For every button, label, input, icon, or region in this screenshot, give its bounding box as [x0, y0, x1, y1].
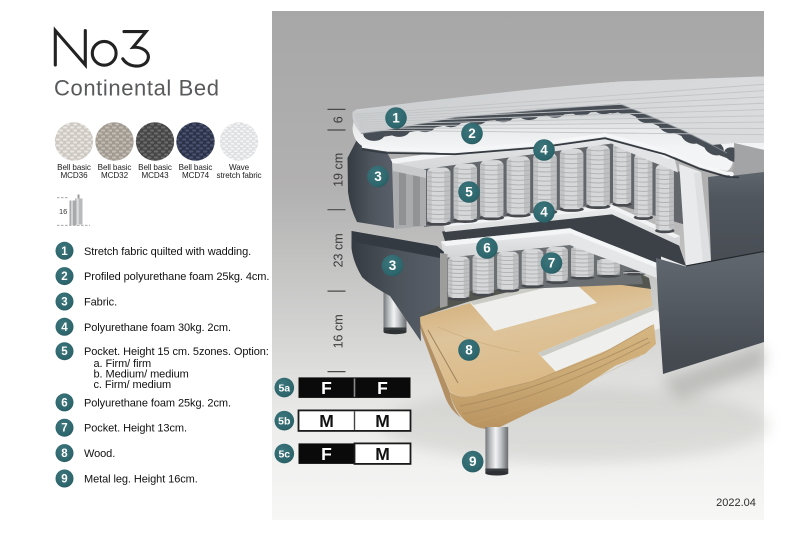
svg-text:3: 3	[61, 297, 67, 309]
svg-text:2: 2	[468, 126, 476, 141]
svg-text:3: 3	[389, 258, 397, 273]
svg-text:MCD36: MCD36	[61, 171, 89, 180]
svg-text:1: 1	[61, 246, 68, 258]
svg-text:1: 1	[392, 111, 400, 126]
svg-text:5: 5	[61, 346, 68, 358]
svg-text:2022.04: 2022.04	[716, 497, 756, 509]
svg-text:Polyurethane foam 30kg. 2cm.: Polyurethane foam 30kg. 2cm.	[84, 322, 231, 334]
svg-text:Continental Bed: Continental Bed	[54, 76, 220, 101]
svg-text:F: F	[321, 444, 332, 464]
svg-text:F: F	[377, 378, 388, 398]
svg-text:6: 6	[61, 397, 67, 409]
svg-text:Fabric.: Fabric.	[84, 297, 117, 309]
svg-text:8: 8	[465, 343, 473, 358]
svg-text:M: M	[375, 444, 390, 464]
svg-text:stretch fabric: stretch fabric	[217, 171, 262, 180]
svg-text:Pocket. Height 15 cm. 5zones.: Pocket. Height 15 cm. 5zones. Option:	[84, 346, 269, 358]
svg-text:Wood.: Wood.	[84, 448, 115, 460]
svg-text:5c: 5c	[278, 448, 290, 460]
svg-text:9: 9	[61, 474, 67, 486]
svg-text:23 cm: 23 cm	[331, 233, 345, 267]
svg-text:16: 16	[59, 207, 67, 216]
svg-text:MCD74: MCD74	[182, 171, 210, 180]
svg-text:5b: 5b	[278, 416, 290, 428]
svg-text:9: 9	[469, 454, 477, 469]
svg-text:8: 8	[61, 448, 68, 460]
svg-text:Metal leg. Height 16cm.: Metal leg. Height 16cm.	[84, 474, 198, 486]
svg-text:4: 4	[540, 205, 548, 220]
svg-text:7: 7	[61, 423, 67, 435]
svg-text:5: 5	[465, 185, 473, 200]
svg-text:M: M	[319, 411, 334, 431]
svg-text:F: F	[321, 378, 332, 398]
svg-text:Pocket. Height 13cm.: Pocket. Height 13cm.	[84, 423, 187, 435]
svg-text:3: 3	[374, 169, 382, 184]
svg-text:Polyurethane foam 25kg. 2cm.: Polyurethane foam 25kg. 2cm.	[84, 397, 231, 409]
svg-text:16 cm: 16 cm	[331, 314, 345, 348]
svg-text:MCD32: MCD32	[101, 171, 129, 180]
svg-text:6: 6	[331, 116, 345, 123]
svg-text:Stretch fabric quilted with wa: Stretch fabric quilted with wadding.	[84, 246, 251, 258]
svg-text:7: 7	[548, 256, 556, 271]
svg-text:c. Firm/ medium: c. Firm/ medium	[94, 379, 172, 391]
svg-text:4: 4	[61, 322, 68, 334]
svg-text:MCD43: MCD43	[142, 171, 170, 180]
svg-text:4: 4	[540, 143, 548, 158]
svg-text:2: 2	[61, 271, 67, 283]
svg-text:5a: 5a	[278, 382, 290, 394]
svg-text:6: 6	[483, 241, 491, 256]
svg-text:Profiled polyurethane foam 25k: Profiled polyurethane foam 25kg. 4cm.	[84, 271, 269, 283]
svg-text:19 cm: 19 cm	[331, 153, 345, 187]
svg-text:M: M	[375, 411, 390, 431]
